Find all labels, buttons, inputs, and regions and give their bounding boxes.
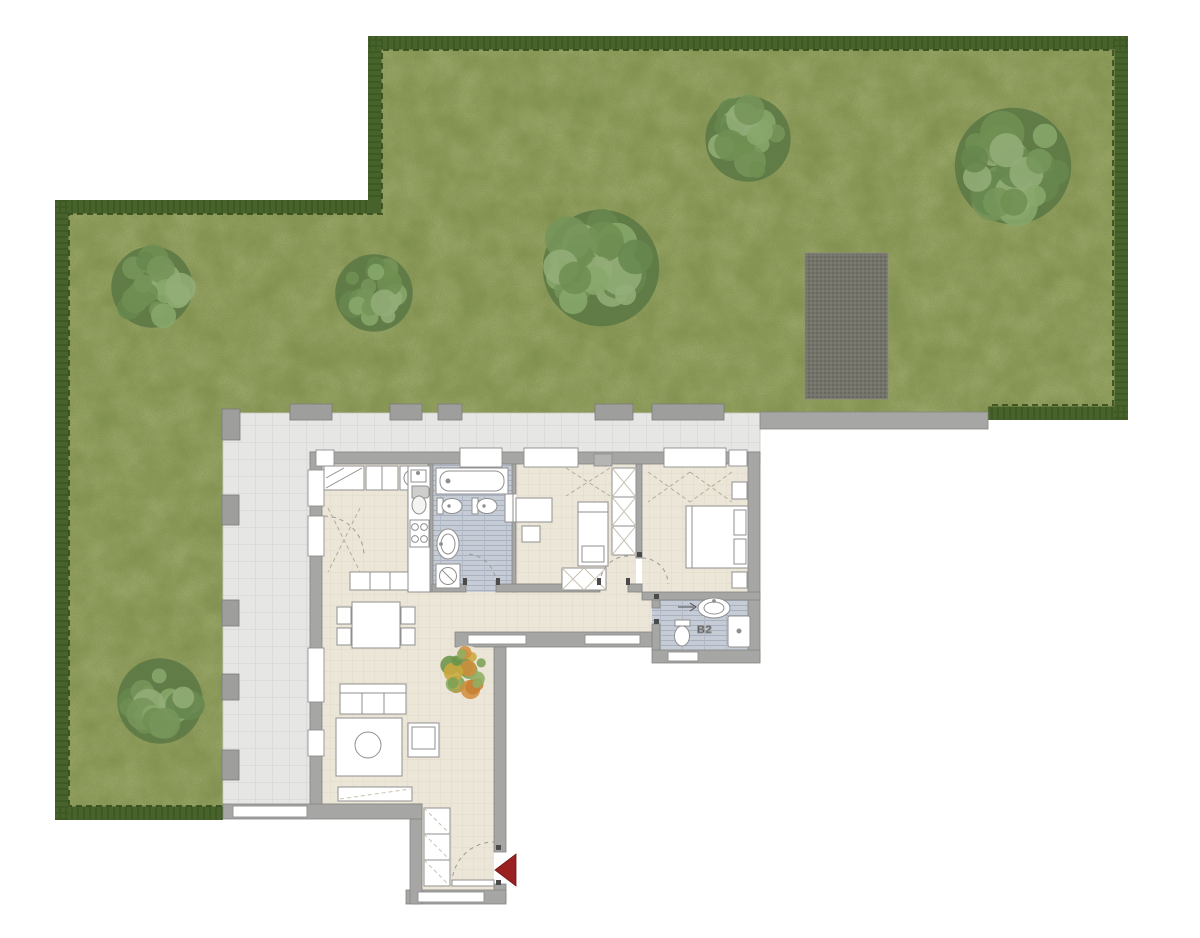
pillow: [734, 539, 746, 564]
pedestal-sink: [437, 529, 459, 559]
double-bed: [686, 506, 748, 568]
window: [468, 635, 526, 644]
window: [418, 892, 484, 902]
window: [664, 448, 726, 467]
window: [585, 635, 640, 644]
sink: [698, 598, 730, 618]
entrance-closet: [424, 808, 450, 886]
wall-bath-bedroom2: [512, 522, 516, 592]
window: [308, 516, 324, 556]
boundary-wall-right: [760, 412, 988, 429]
dining-chair: [401, 607, 415, 624]
wall-hall-right: [494, 647, 506, 852]
wall-bathroom2-left: [652, 624, 660, 650]
single-bed: [578, 502, 608, 566]
wardrobe-column: [612, 468, 636, 555]
parapet-segment: [652, 404, 724, 420]
parapet-pillar: [222, 409, 240, 440]
bath-stool: [522, 526, 540, 542]
armchair: [408, 723, 439, 757]
wall-bathroom2-left: [652, 600, 660, 608]
floor-plan-page: B2: [0, 0, 1200, 938]
entrance-door-leaf: [452, 880, 494, 886]
vent-box: [594, 454, 612, 466]
window: [233, 806, 307, 817]
bathroom1-door-leaf: [505, 494, 513, 522]
gravel-patch: [805, 253, 888, 399]
coffee-table: [336, 718, 402, 776]
corridor-floor: [432, 592, 652, 634]
dining-chair: [337, 607, 351, 624]
window: [729, 450, 747, 466]
wall-bath-bedroom2: [512, 464, 516, 494]
shower: [728, 616, 750, 647]
window: [460, 448, 502, 467]
floor-plan-drawing: B2: [0, 0, 1200, 938]
window: [308, 470, 324, 506]
bath-shelf: [516, 498, 552, 522]
parapet-segment: [390, 404, 422, 420]
parapet-segment: [290, 404, 332, 420]
parapet-pillar: [222, 750, 239, 780]
wall-bedroom-divider: [636, 464, 642, 558]
parapet-pillar: [222, 495, 239, 525]
dining-table: [352, 602, 400, 648]
dining-chair: [337, 628, 351, 645]
toilet: [437, 498, 462, 514]
wall-corridor-top: [628, 584, 642, 592]
nightstand: [732, 482, 747, 499]
kitchen-basin-oval: [412, 496, 426, 514]
pillow: [734, 510, 746, 535]
parapet-pillar: [222, 674, 239, 700]
window: [524, 448, 578, 467]
wall-bathroom2-top: [642, 592, 760, 600]
parapet-segment: [438, 404, 462, 420]
dining-chair: [401, 628, 415, 645]
toilet: [675, 620, 691, 646]
window: [308, 730, 324, 756]
window: [308, 648, 324, 702]
parapet-pillar: [222, 600, 239, 626]
kitchen-base-cabinets: [350, 572, 408, 590]
window: [316, 450, 334, 466]
bathroom2-label: B2: [697, 624, 712, 636]
window: [668, 652, 698, 661]
nightstand: [732, 572, 747, 588]
washing-machine: [436, 564, 460, 588]
parapet-segment: [595, 404, 633, 420]
tree: [335, 254, 413, 332]
sofa: [340, 684, 406, 714]
bidet: [472, 498, 497, 514]
